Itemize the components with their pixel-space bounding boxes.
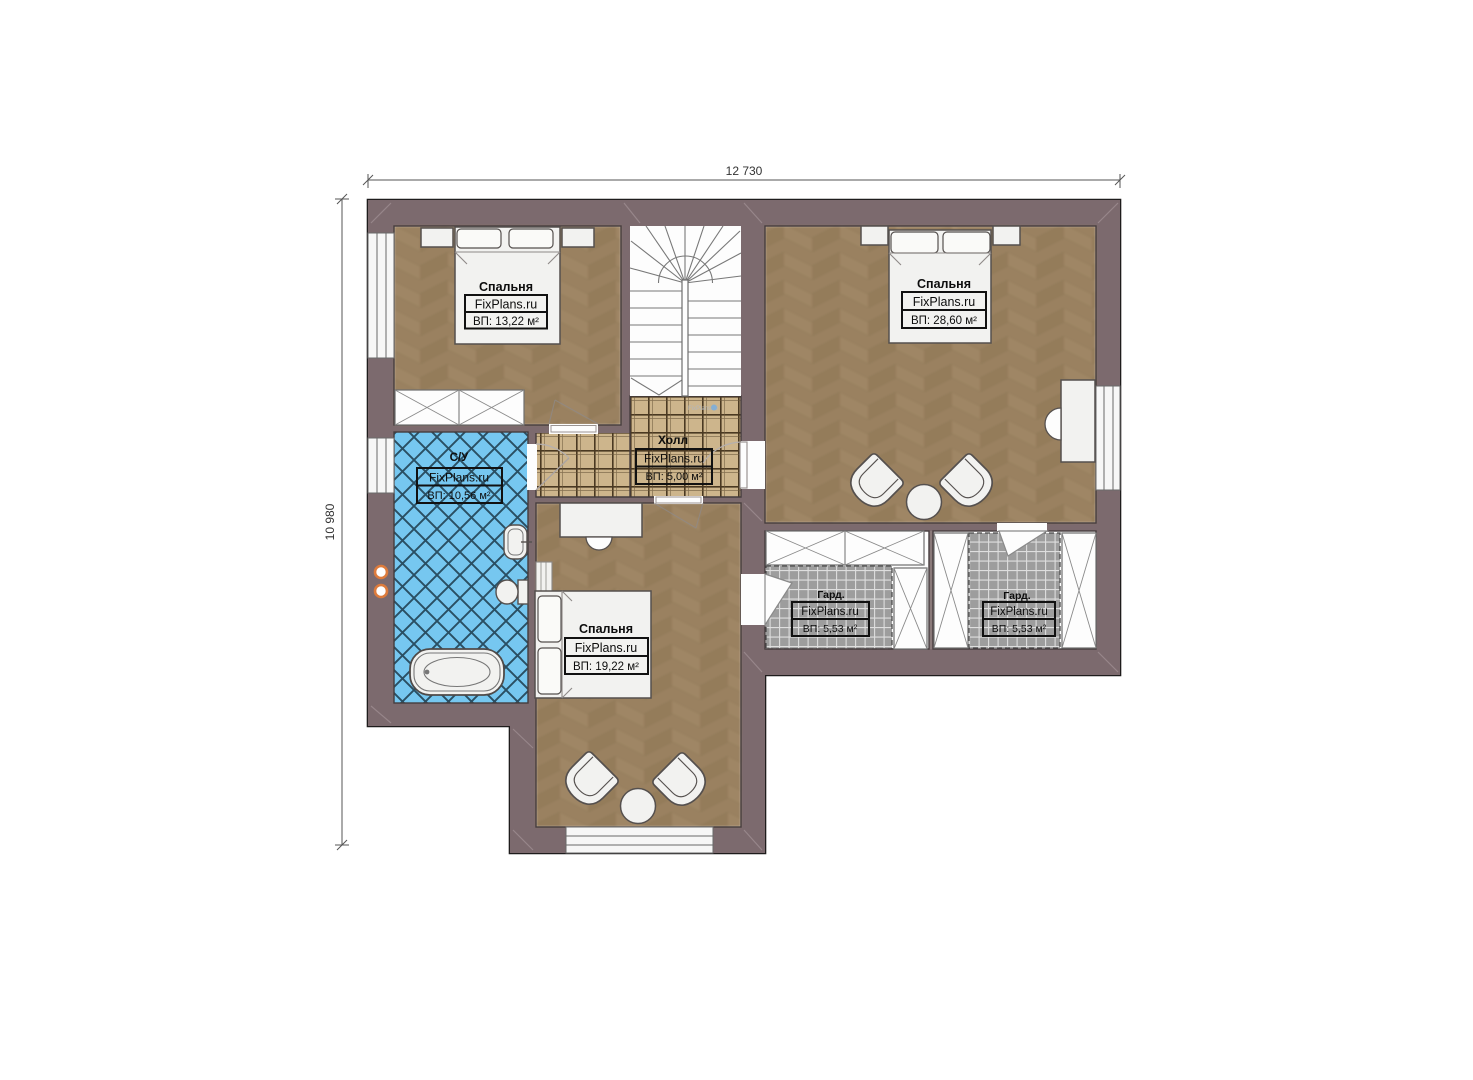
svg-text:ВП: 5,53 м²: ВП: 5,53 м² <box>803 623 858 635</box>
svg-text:Спальня: Спальня <box>579 622 633 636</box>
svg-text:ВП: 13,22 м²: ВП: 13,22 м² <box>473 316 539 328</box>
svg-text:FixPlans.ru: FixPlans.ru <box>990 606 1048 618</box>
svg-text:FixPlans.ru: FixPlans.ru <box>644 452 704 466</box>
svg-text:ВП: 5,53 м²: ВП: 5,53 м² <box>992 623 1047 635</box>
svg-text:С/У: С/У <box>450 452 470 464</box>
svg-text:FixPlans.ru: FixPlans.ru <box>475 298 538 312</box>
svg-text:Гард.: Гард. <box>817 589 844 601</box>
svg-text:12 730: 12 730 <box>726 164 763 178</box>
svg-text:FixPlans.ru: FixPlans.ru <box>913 295 976 309</box>
svg-text:FixPlans.ru: FixPlans.ru <box>429 471 489 485</box>
svg-text:ВП: 10,56 м²: ВП: 10,56 м² <box>427 490 491 502</box>
svg-text:10 980: 10 980 <box>323 503 337 540</box>
svg-text:ВП: 28,60 м²: ВП: 28,60 м² <box>911 315 977 327</box>
svg-text:Спальня: Спальня <box>917 277 971 291</box>
svg-text:ВП: 5,00 м²: ВП: 5,00 м² <box>645 471 702 483</box>
svg-text:Спальня: Спальня <box>479 280 533 294</box>
svg-text:ВП: 19,22 м²: ВП: 19,22 м² <box>573 661 639 673</box>
svg-text:FixPlans.ru: FixPlans.ru <box>575 641 638 655</box>
svg-text:Гард.: Гард. <box>1003 590 1030 602</box>
svg-text:Холл: Холл <box>658 433 688 447</box>
svg-text:FixPlans.ru: FixPlans.ru <box>801 606 859 618</box>
